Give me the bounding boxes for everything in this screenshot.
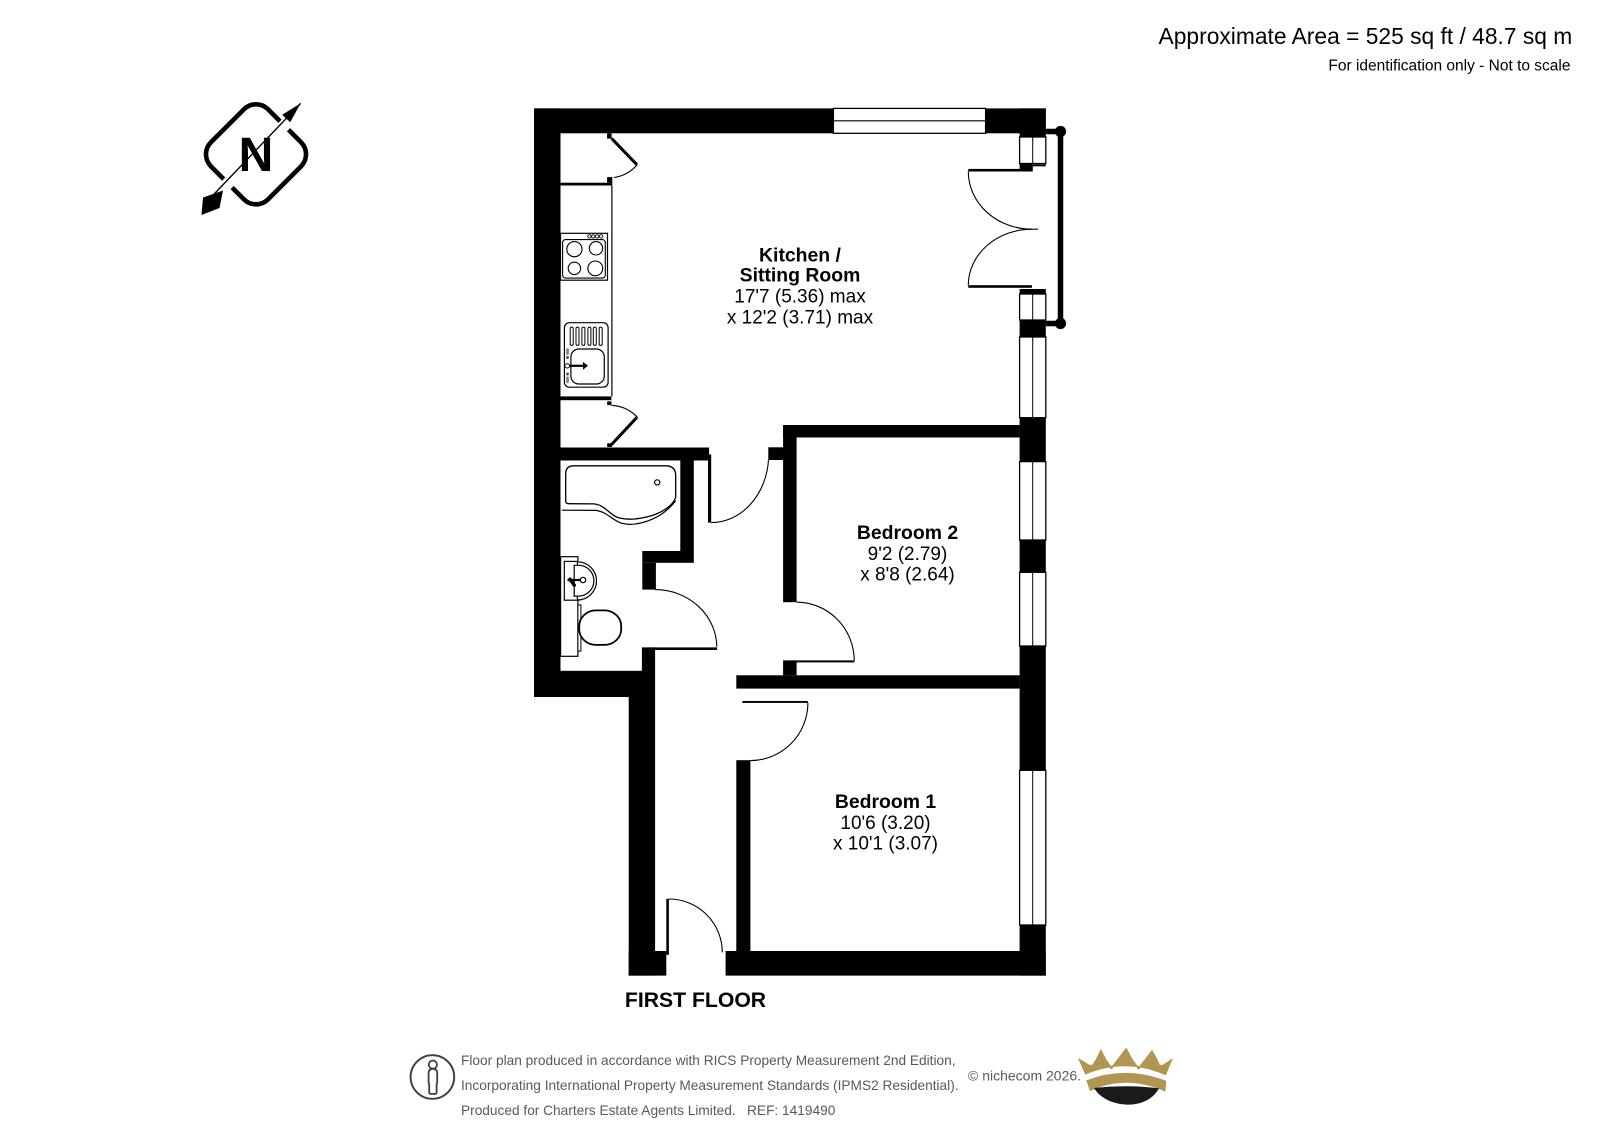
svg-text:Bedroom 2: Bedroom 2 [857,522,958,544]
svg-text:Bedroom 1: Bedroom 1 [835,791,936,813]
svg-text:Incorporating International Pr: Incorporating International Property Mea… [461,1078,959,1093]
svg-text:17'7 (5.36) max: 17'7 (5.36) max [734,286,866,307]
svg-text:For identification only - Not: For identification only - Not to scale [1328,57,1570,74]
svg-text:FIRST FLOOR: FIRST FLOOR [625,989,766,1012]
svg-text:Sitting Room: Sitting Room [740,265,861,287]
svg-text:Floor plan produced in accorda: Floor plan produced in accordance with R… [461,1053,956,1068]
svg-text:x 12'2 (3.71) max: x 12'2 (3.71) max [727,307,874,328]
svg-text:© nichecom 2026.: © nichecom 2026. [968,1068,1081,1084]
svg-text:x 10'1 (3.07): x 10'1 (3.07) [833,834,938,855]
svg-text:Produced for Charters Estate A: Produced for Charters Estate Agents Limi… [461,1103,836,1118]
svg-text:Kitchen /: Kitchen / [759,245,841,267]
svg-text:9'2 (2.79): 9'2 (2.79) [868,544,948,565]
svg-text:x 8'8 (2.64): x 8'8 (2.64) [860,565,954,586]
svg-text:Approximate Area = 525 sq ft /: Approximate Area = 525 sq ft / 48.7 sq m [1159,23,1573,49]
svg-text:10'6 (3.20): 10'6 (3.20) [840,813,930,834]
